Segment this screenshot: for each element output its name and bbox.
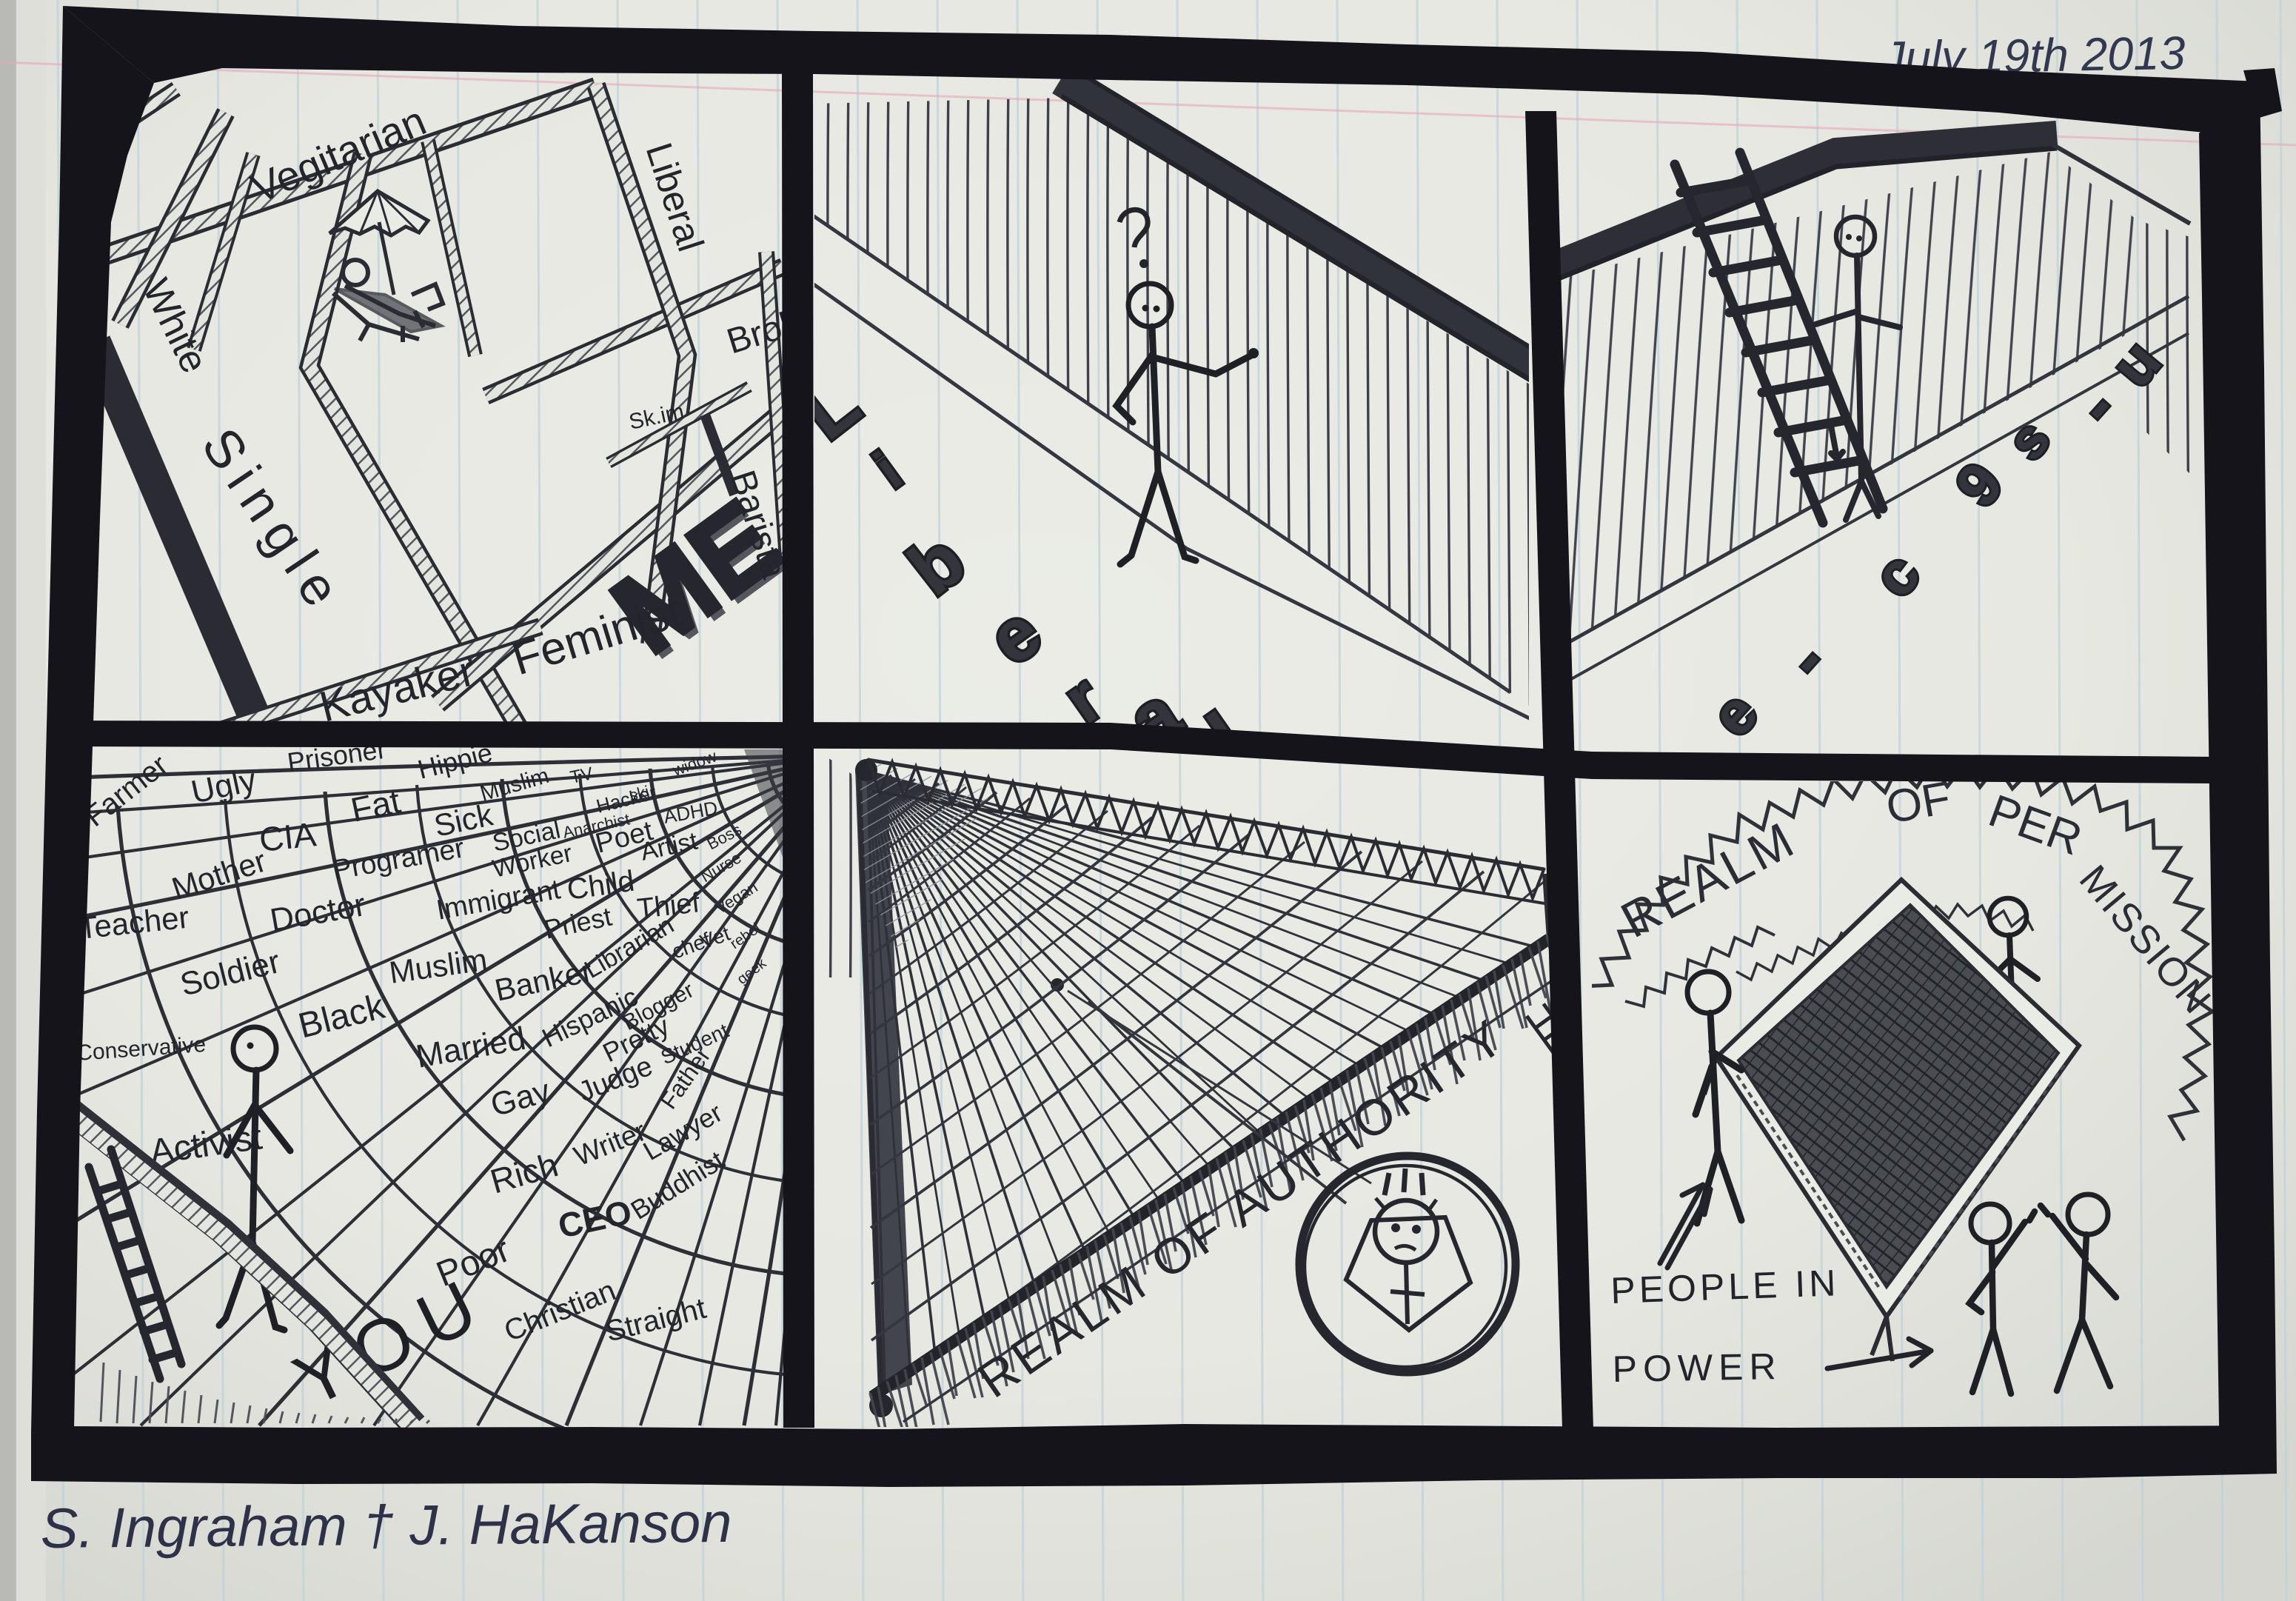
svg-text:CIA: CIA: [258, 815, 318, 859]
svg-text:S. Ingraham † J. HaKanson: S. Ingraham † J. HaKanson: [40, 1491, 732, 1560]
svg-text:POWER: POWER: [1612, 1346, 1782, 1390]
svg-text:PEOPLE IN: PEOPLE IN: [1610, 1262, 1840, 1311]
